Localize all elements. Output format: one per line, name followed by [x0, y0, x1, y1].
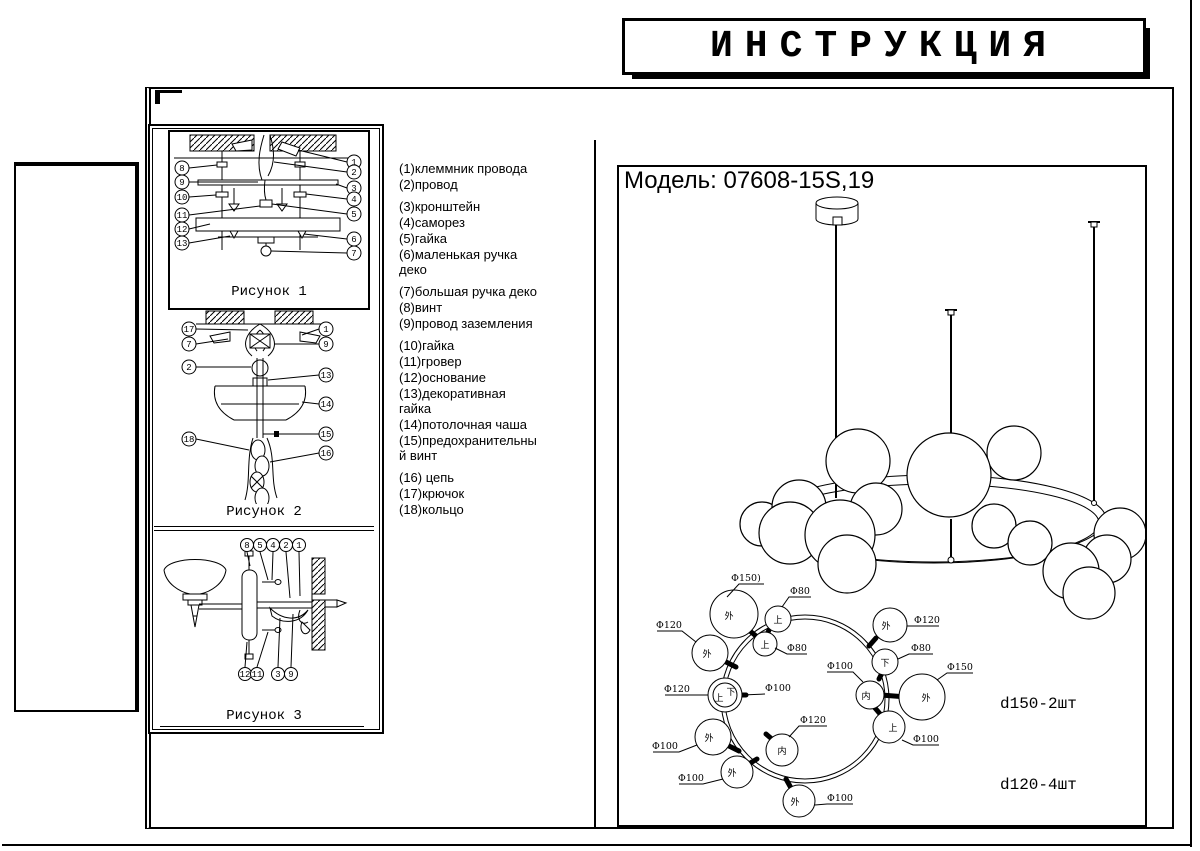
ball-position-char: 下: [880, 659, 889, 669]
ball-position-char: 上: [773, 615, 782, 626]
ball-position-char: 下: [726, 688, 735, 698]
callout-number: 9: [288, 670, 293, 680]
callout-number: 13: [177, 239, 188, 249]
part-item: (2)провод: [399, 177, 607, 192]
callout-number: 6: [351, 235, 356, 245]
ball-position-char: 外: [881, 620, 890, 632]
sheet-edge-right: [1190, 0, 1192, 847]
wall-hatch: [312, 558, 325, 650]
ball-diameter-label: Φ150: [947, 662, 973, 673]
callout-number: 2: [351, 168, 356, 178]
figure-1-caption: Рисунок 1: [170, 284, 368, 300]
part-item: (6)маленькая ручка деко: [399, 247, 607, 277]
ball-diameter-label: Φ80: [790, 586, 810, 597]
callout-number: 13: [321, 371, 332, 381]
callout-number: 9: [179, 178, 184, 188]
part-item: (3)кронштейн: [399, 199, 607, 214]
quantity-line: d150-2шт: [1000, 691, 1077, 718]
ball-position-char: 上: [888, 723, 897, 734]
ball-diameter-label: Φ100: [827, 793, 853, 804]
figure-2-drawing: 17 7 2 18 1 9 13 14 15 16: [150, 310, 378, 504]
callout-number: 7: [186, 340, 191, 350]
figure-3-caption: Рисунок 3: [150, 708, 378, 724]
part-item: (14)потолочная чаша: [399, 417, 607, 432]
hook-scroll: [210, 324, 320, 356]
ball-quantities: d150-2шт d120-4шт d100-6шт d80-3шт: [1000, 637, 1077, 851]
figure-2: 17 7 2 18 1 9 13 14 15 16 Рисунок 2: [150, 310, 378, 534]
callout-number: 2: [186, 363, 191, 373]
ball-diameter-label: Φ120: [914, 615, 940, 626]
top-view-balls: [692, 590, 945, 817]
ball-diameter-label: Φ150): [731, 573, 761, 584]
page-title-text: ИНСТРУКЦИЯ: [710, 25, 1058, 68]
ceiling-hatch: [196, 311, 328, 324]
column-divider: [594, 140, 596, 827]
top-view: Φ150) Φ80 Φ80 Φ120 Φ120 Φ100 Φ100 Φ100 Φ…: [652, 573, 973, 817]
separator: [154, 530, 374, 531]
ball-diameter-label: Φ100: [678, 773, 704, 784]
callout-number: 2: [283, 541, 288, 551]
side-view: [740, 197, 1145, 619]
page-title: ИНСТРУКЦИЯ: [622, 18, 1146, 75]
callout-number: 11: [252, 670, 263, 680]
ball-position-char: 外: [704, 732, 713, 744]
callout-number: 4: [270, 541, 275, 551]
ball-position-char: 外: [790, 796, 799, 808]
chain: [245, 438, 277, 504]
part-item: (18)кольцо: [399, 502, 607, 517]
part-item: (15)предохранительны й винт: [399, 433, 607, 463]
ball-position-char: 外: [727, 767, 736, 779]
stem-and-cup: [214, 358, 305, 438]
model-label: Модель: 07608-15S,19: [624, 167, 874, 195]
caption-underline: [160, 726, 364, 727]
figure-3: 8 5 4 2 1 12 11 3 9 Рисунок 3: [150, 536, 378, 732]
callout-number: 3: [275, 670, 280, 680]
ball-diameter-label: Φ100: [913, 734, 939, 745]
ball-position-char: 外: [921, 692, 930, 704]
backplate-assembly: [242, 551, 281, 659]
callout-number: 15: [321, 430, 332, 440]
ball-diameter-label: Φ100: [765, 683, 791, 694]
callout-number: 16: [321, 449, 332, 459]
ball-position-char: 外: [724, 610, 733, 622]
ceiling-hatch: [174, 135, 360, 158]
ball-diameter-label: Φ120: [800, 715, 826, 726]
callout-number: 10: [177, 193, 188, 203]
part-item: (8)винт: [399, 300, 607, 315]
separator: [154, 526, 374, 527]
figure-3-drawing: 8 5 4 2 1 12 11 3 9: [150, 536, 378, 704]
figures-panel: 8 9 10 11 12 13 1 2 3 4 5 6 7 Рисунок 1: [148, 124, 384, 734]
instruction-sheet: ИНСТРУКЦИЯ: [0, 0, 1200, 851]
callout-number: 8: [244, 541, 249, 551]
callout-number: 5: [351, 210, 356, 220]
part-item: (16) цепь: [399, 470, 607, 485]
corner-mark: [155, 90, 182, 104]
callout-number: 1: [296, 541, 301, 551]
callout-number: 9: [323, 340, 328, 350]
callout-number: 4: [351, 195, 356, 205]
part-item: (9)провод заземления: [399, 316, 607, 331]
figure-1-drawing: 8 9 10 11 12 13 1 2 3 4 5 6 7: [170, 132, 364, 282]
callout-number: 12: [177, 225, 188, 235]
ball-position-char: 上: [714, 693, 723, 704]
ball-position-char: 上: [760, 640, 769, 651]
figure-1: 8 9 10 11 12 13 1 2 3 4 5 6 7 Рисунок 1: [168, 130, 370, 310]
ball-diameter-label: Φ100: [652, 741, 678, 752]
parts-list: (1)клеммник провода (2)провод (3)кронште…: [399, 161, 607, 518]
callout-number: 1: [323, 325, 328, 335]
part-item: (4)саморез: [399, 215, 607, 230]
part-item: (17)крючок: [399, 486, 607, 501]
callout-number: 7: [351, 249, 356, 259]
ball-diameter-label: Φ80: [911, 643, 931, 654]
callout-number: 17: [184, 325, 195, 335]
figure-2-caption: Рисунок 2: [150, 504, 378, 520]
empty-side-box: [14, 162, 139, 712]
wires: [232, 135, 300, 207]
callout-number: 8: [179, 164, 184, 174]
callout-number: 5: [257, 541, 262, 551]
part-item: (13)декоративная гайка: [399, 386, 607, 416]
part-item: (11)гровер: [399, 354, 607, 369]
part-item: (7)большая ручка деко: [399, 284, 607, 299]
model-panel: Φ150) Φ80 Φ80 Φ120 Φ120 Φ100 Φ100 Φ100 Φ…: [617, 165, 1147, 827]
wall-arm: [257, 600, 346, 634]
callout-number: 18: [184, 435, 195, 445]
ceiling-cup: [196, 218, 340, 256]
part-item: (1)клеммник провода: [399, 161, 607, 176]
part-item: (12)основание: [399, 370, 607, 385]
ball-diameter-label: Φ120: [664, 684, 690, 695]
lamp-shade: [164, 560, 242, 628]
callout-number: 12: [240, 670, 251, 680]
ball-position-char: 内: [777, 745, 786, 757]
ball-diameter-label: Φ80: [787, 643, 807, 654]
callout-number: 11: [177, 211, 188, 221]
part-item: (5)гайка: [399, 231, 607, 246]
ball-position-char: 内: [861, 690, 870, 702]
ball-diameter-label: Φ120: [656, 620, 682, 631]
ball-position-char: 外: [702, 648, 711, 660]
ball-diameter-label: Φ100: [827, 661, 853, 672]
callout-number: 14: [321, 400, 332, 410]
part-item: (10)гайка: [399, 338, 607, 353]
quantity-line: d120-4шт: [1000, 772, 1077, 799]
